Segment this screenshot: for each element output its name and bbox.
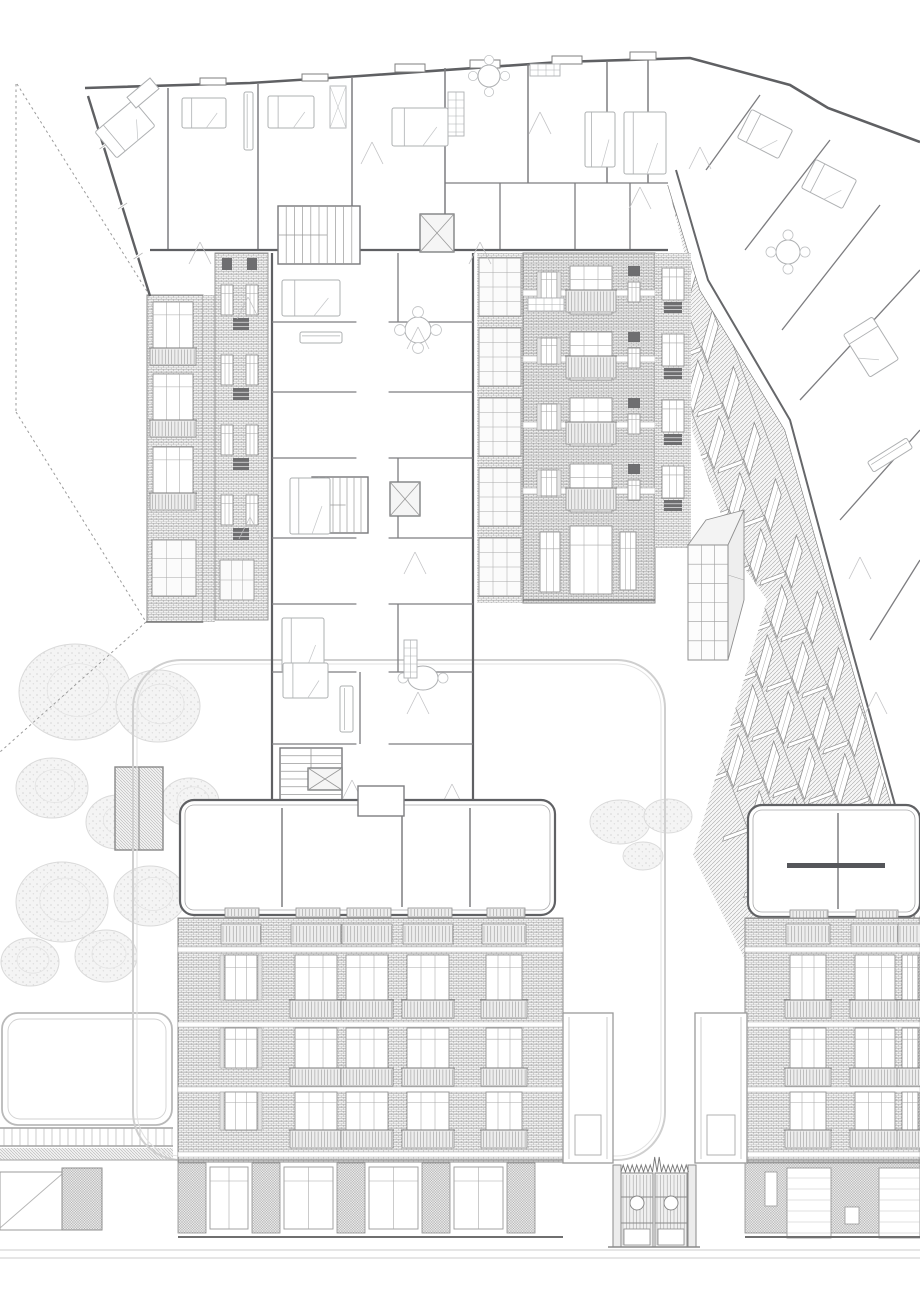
entrance-gate [608, 1157, 700, 1247]
greenhouse [688, 510, 744, 660]
inner-west-facade [477, 253, 523, 603]
architectural-drawing-page [0, 0, 920, 1305]
street-pavilions [180, 786, 920, 919]
street-facade-right [745, 918, 920, 1238]
lightwell-facade [215, 253, 268, 620]
west-garden-facade [146, 295, 215, 622]
courtyard-strip-facade [655, 253, 691, 548]
plan-and-elevation-drawing [0, 0, 920, 1305]
street-facade-left [178, 918, 563, 1237]
